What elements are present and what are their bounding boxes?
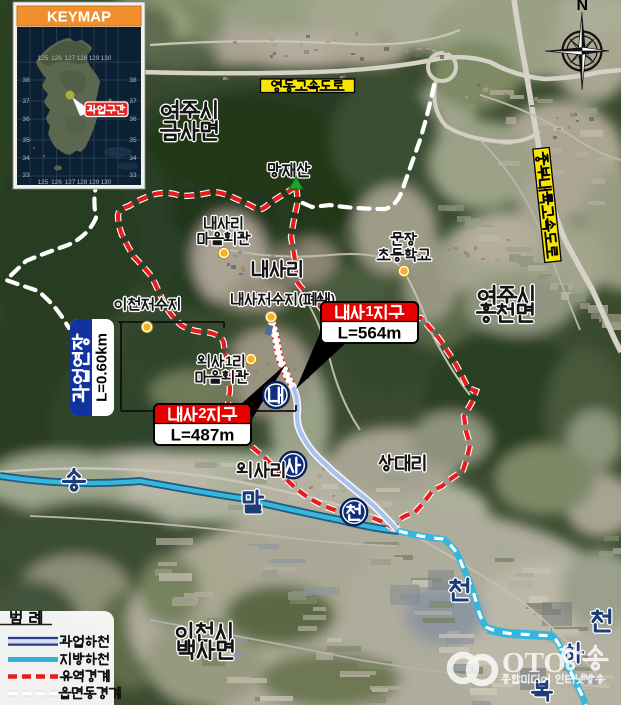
svg-text:125: 125 — [38, 179, 49, 186]
svg-text:126: 126 — [51, 55, 62, 62]
svg-text:2: 2 — [198, 406, 206, 422]
svg-text:35: 35 — [22, 137, 30, 144]
svg-text:129: 129 — [89, 179, 100, 186]
svg-text:33: 33 — [129, 172, 137, 179]
svg-text:38: 38 — [22, 77, 30, 84]
svg-text:127: 127 — [65, 179, 76, 186]
svg-text:KEYMAP: KEYMAP — [47, 9, 111, 26]
svg-text:125: 125 — [38, 55, 49, 62]
svg-text:36: 36 — [129, 116, 137, 123]
svg-text:L=0.60km: L=0.60km — [94, 333, 111, 402]
svg-text:37: 37 — [129, 98, 137, 105]
svg-text:35: 35 — [129, 137, 137, 144]
svg-text:127: 127 — [65, 55, 76, 62]
svg-text:1: 1 — [225, 354, 233, 369]
svg-text:37: 37 — [22, 98, 30, 105]
svg-text:34: 34 — [129, 155, 137, 162]
svg-text:128: 128 — [77, 55, 88, 62]
svg-text:N: N — [577, 0, 589, 14]
svg-text:126: 126 — [51, 179, 62, 186]
svg-text:38: 38 — [129, 77, 137, 84]
svg-text:36: 36 — [22, 116, 30, 123]
svg-text:L=564m: L=564m — [338, 324, 402, 343]
svg-text:128: 128 — [77, 179, 88, 186]
svg-text:130: 130 — [101, 55, 112, 62]
svg-text:L=487m: L=487m — [171, 426, 235, 445]
svg-text:1: 1 — [365, 304, 373, 320]
svg-text:(: ( — [299, 292, 304, 307]
svg-text:129: 129 — [89, 55, 100, 62]
svg-text:OTO: OTO — [502, 647, 566, 679]
svg-text:130: 130 — [101, 179, 112, 186]
svg-text:34: 34 — [22, 155, 30, 162]
svg-text:33: 33 — [22, 172, 30, 179]
